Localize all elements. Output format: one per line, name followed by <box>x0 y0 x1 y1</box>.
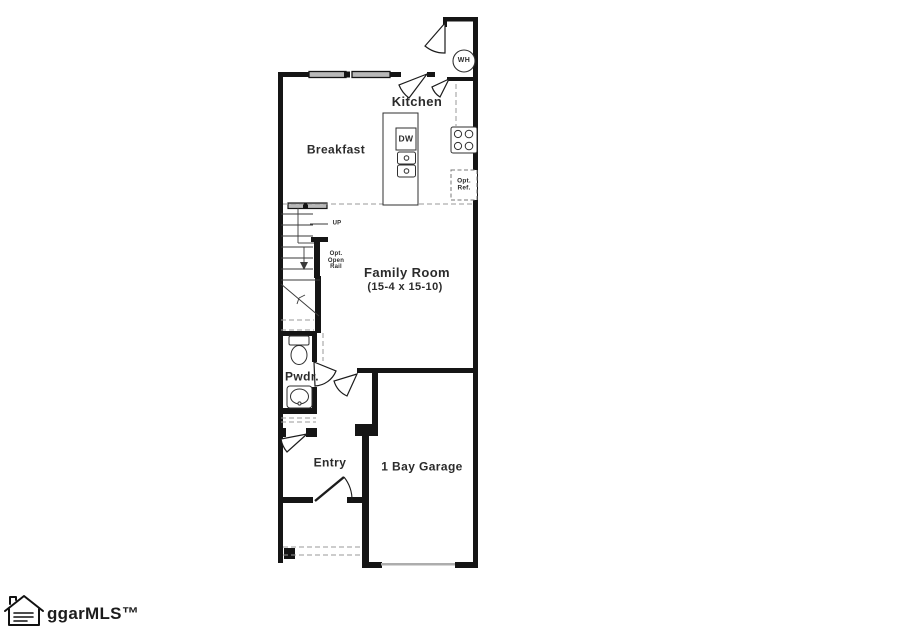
sink-vanity-icon <box>287 386 312 408</box>
dishwasher-label: DW <box>399 134 414 143</box>
kitchen-island <box>383 113 418 205</box>
family-room-label: Family Room <box>364 266 450 280</box>
breakfast-label: Breakfast <box>307 143 365 156</box>
kitchen-sink-icon <box>398 152 416 177</box>
watermark-brand: ggarMLS™ <box>47 604 139 624</box>
window-icon <box>309 72 390 78</box>
house-logo-icon <box>5 596 43 625</box>
optional-refrigerator-label: Opt. Ref. <box>457 178 471 193</box>
front-door <box>315 477 352 501</box>
toilet-icon <box>289 336 309 365</box>
water-heater-closet-door <box>425 23 445 53</box>
family-room-dimensions: (15-4 x 15-10) <box>367 281 442 293</box>
entry-label: Entry <box>314 456 347 469</box>
garage-door-line <box>381 563 455 566</box>
floor-plan-drawing <box>0 0 919 628</box>
stair-break-line <box>281 284 319 316</box>
stairs-up-label: UP <box>333 221 342 228</box>
floor-plan-page: Kitchen Breakfast Family Room (15-4 x 15… <box>0 0 919 628</box>
porch-post <box>284 548 295 559</box>
hall-door <box>334 374 357 396</box>
garage-label: 1 Bay Garage <box>381 460 463 473</box>
optional-open-rail-label: Opt. Open Rail <box>328 251 344 271</box>
stove-icon <box>451 127 477 153</box>
kitchen-label: Kitchen <box>392 95 442 109</box>
water-heater-label: WH <box>458 57 470 65</box>
powder-room-label: Pwdr. <box>285 370 319 383</box>
understair-dashed <box>281 320 314 330</box>
